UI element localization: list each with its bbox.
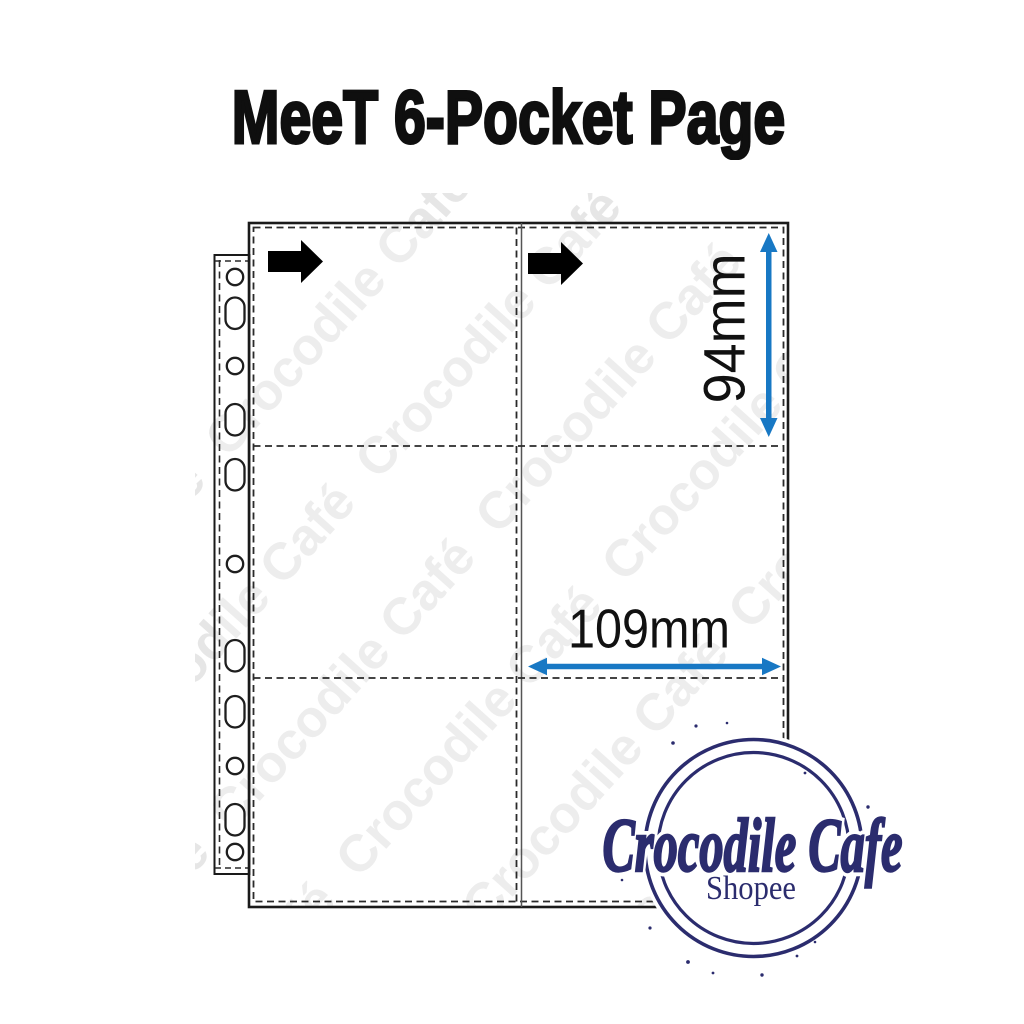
- svg-text:Café: Café: [482, 967, 601, 1024]
- svg-text:Café: Café: [887, 328, 1006, 451]
- svg-text:Café: Café: [98, 451, 217, 574]
- svg-text:Café: Café: [355, 919, 474, 1024]
- svg-text:Crocodile: Crocodile: [856, 80, 1024, 297]
- svg-text:Café: Café: [102, 823, 221, 946]
- svg-text:Shopee: Shopee: [706, 870, 796, 907]
- svg-text:109mm: 109mm: [568, 598, 730, 660]
- svg-text:94mm: 94mm: [693, 253, 758, 403]
- svg-text:Crocodile: Crocodile: [843, 471, 1024, 688]
